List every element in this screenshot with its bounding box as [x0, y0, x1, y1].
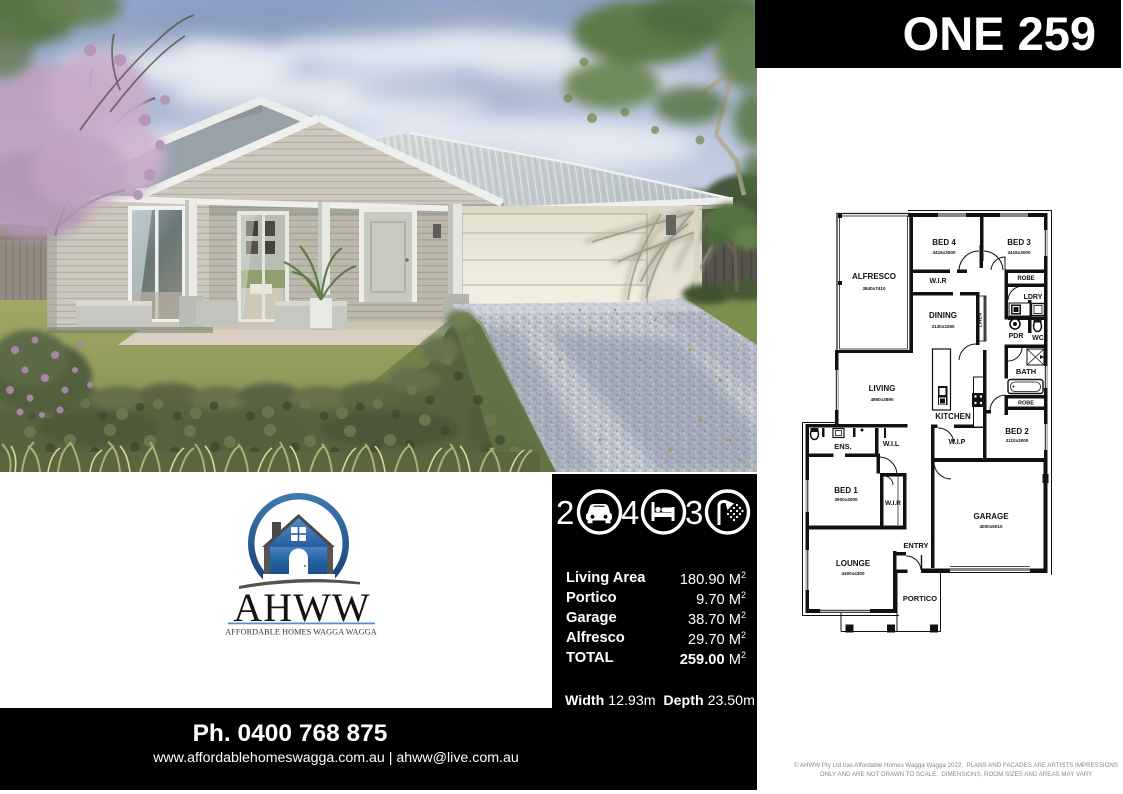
svg-text:BED 4: BED 4 — [932, 238, 956, 247]
svg-text:3840x7410: 3840x7410 — [863, 286, 886, 291]
svg-text:3900x4000: 3900x4000 — [835, 497, 858, 502]
svg-text:DINING: DINING — [929, 311, 957, 320]
svg-text:ENTRY: ENTRY — [903, 541, 928, 550]
svg-text:W.I.P: W.I.P — [949, 439, 966, 446]
svg-text:BED 1: BED 1 — [834, 486, 858, 495]
svg-text:ALFRESCO: ALFRESCO — [852, 272, 896, 281]
svg-text:WC: WC — [1032, 335, 1044, 342]
svg-text:ROBE: ROBE — [1018, 401, 1034, 407]
svg-text:LDRY: LDRY — [1024, 294, 1043, 301]
svg-text:KITCHEN: KITCHEN — [935, 412, 971, 421]
svg-text:PDR: PDR — [1009, 333, 1024, 340]
svg-text:3130x3290: 3130x3290 — [932, 324, 955, 329]
svg-text:4300x4300: 4300x4300 — [842, 571, 865, 576]
svg-text:4860x3890: 4860x3890 — [871, 397, 894, 402]
svg-text:3415x3000: 3415x3000 — [933, 250, 956, 255]
svg-text:ENS.: ENS. — [834, 442, 852, 451]
svg-text:LOUNGE: LOUNGE — [836, 559, 871, 568]
svg-text:W.I.R: W.I.R — [885, 500, 901, 507]
svg-text:ROBE: ROBE — [1017, 276, 1034, 282]
svg-text:3415x3000: 3415x3000 — [1008, 250, 1031, 255]
svg-text:W.I.R: W.I.R — [929, 278, 946, 285]
svg-text:3: 3 — [685, 494, 703, 531]
svg-text:BED 3: BED 3 — [1007, 238, 1031, 247]
svg-text:4000x6010: 4000x6010 — [980, 524, 1003, 529]
svg-text:BED 2: BED 2 — [1005, 427, 1029, 436]
svg-text:GARAGE: GARAGE — [973, 512, 1009, 521]
svg-text:4: 4 — [621, 494, 639, 531]
svg-text:LINEN: LINEN — [978, 312, 984, 327]
svg-text:W.I.L: W.I.L — [883, 441, 900, 448]
svg-text:PORTICO: PORTICO — [903, 594, 937, 603]
svg-text:2: 2 — [556, 494, 574, 531]
svg-text:LIVING: LIVING — [869, 384, 896, 393]
svg-text:AFFORDABLE HOMES WAGGA WAGGA: AFFORDABLE HOMES WAGGA WAGGA — [225, 628, 376, 637]
svg-text:BATH: BATH — [1016, 367, 1036, 376]
svg-text:3110x3000: 3110x3000 — [1006, 438, 1029, 443]
